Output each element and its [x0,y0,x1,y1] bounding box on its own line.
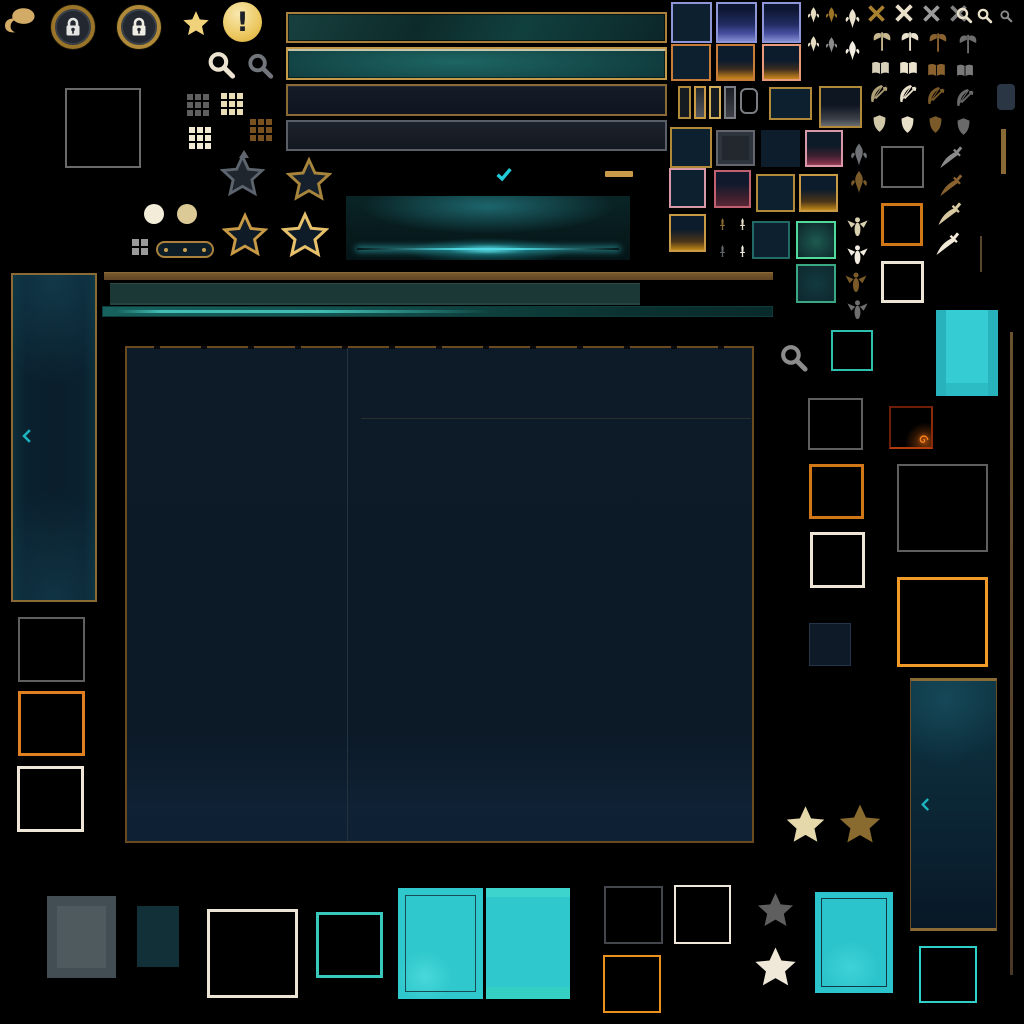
tile-orange-gradient [716,44,755,81]
knife-brown-icon [937,172,964,200]
tile-teal-dark [752,221,790,259]
frame-fire-ember [889,406,933,449]
frame-gray [808,398,863,450]
glow-button[interactable] [346,196,630,260]
leaf-brown-icon [847,167,871,197]
shield-brown-icon [926,111,945,138]
frame-white-small [881,261,924,303]
bow-tan-icon [866,82,893,106]
tile-orange-plain [671,44,711,81]
frame-teal-bottom [316,912,383,978]
x-gold-icon[interactable] [865,3,888,24]
bar-dark-teal [110,283,640,305]
bee-cream-icon [844,212,871,240]
frame-gray-large [897,464,988,552]
magnifier-gray-icon[interactable] [245,51,275,80]
star-white-filled-icon [752,944,799,990]
spiral-ember-icon [917,433,930,446]
cyan-tile-1 [398,888,483,999]
frame-white [810,532,865,588]
grid-dots-cream-icon[interactable] [221,93,244,116]
right-collapse-panel[interactable] [910,678,997,931]
tile-gold-gradient [799,174,838,212]
frame-white-bottom-2 [674,885,731,944]
sword-brown-icon [716,212,729,236]
frame-orange-small [881,203,923,246]
frame-gray-left [18,617,85,682]
bar-navy-gold[interactable] [286,84,667,116]
magnifier-cream-icon[interactable] [205,49,237,80]
book-brown-icon [924,60,949,81]
lock-badge[interactable] [51,5,95,49]
grid-dots-cream-icon-2[interactable] [189,127,212,150]
circle-cream [144,204,164,224]
panel-faint-line [361,418,751,419]
book-cream-icon [896,58,921,79]
star-outline-gold-icon [286,156,332,203]
tile-gold-plain-2 [670,127,712,168]
bar-teal-gold[interactable] [286,12,667,43]
fleur-white-large-icon [842,36,863,65]
frame-orange-left [18,691,85,756]
lock-badge-bright[interactable] [117,5,161,49]
glow-line [357,248,618,250]
frame-darkgray-bottom [604,886,663,944]
cyan-tile-2 [486,888,570,999]
fleur-cream-icon-2 [805,31,822,57]
slider-handle-gold-1[interactable] [678,86,691,119]
tile-maroon-gradient [714,170,751,208]
bee-brown-icon [842,267,870,296]
book-pale-icon [868,58,893,79]
fleur-cream-large-icon [842,4,863,33]
tile-gold-plain-3 [756,174,795,212]
pill-handle[interactable] [156,241,214,258]
star-gray-filled-icon [755,890,796,930]
rounded-dark-rect [997,84,1015,110]
tile-blue-plain [671,2,712,43]
cyan-tile-right [936,310,998,396]
gold-star-icon [181,9,211,38]
frame-orange-bottom [603,955,661,1013]
tile-gray [716,130,755,166]
check-icon[interactable] [493,165,515,183]
chevron-left-icon-2[interactable] [918,796,933,813]
tile-navy-plain [761,130,800,167]
magnifier-small-gray-icon[interactable] [999,9,1013,23]
fleur-gold-icon [823,2,840,28]
leaf-gray-icon [847,139,871,170]
slider-handle-gold-2[interactable] [694,86,706,119]
star-outline-gold-icon-2 [222,212,268,258]
divider-brown [104,272,773,280]
gold-vline [1001,129,1006,174]
panel-divider [347,348,348,841]
axe-brown-icon [925,28,951,56]
alert-glyph: ! [236,7,248,38]
axe-gray-icon [955,30,981,57]
mini-grid-icon[interactable] [132,239,148,255]
bow-cream-icon [895,82,922,106]
knife-cream-icon [935,199,963,230]
tile-blue-gradient-2 [762,2,801,43]
tile-pink-gradient [805,130,843,167]
x-cream-icon[interactable] [892,2,916,24]
brown-vline-short [980,236,982,272]
frame-square-gray-top [65,88,141,168]
shield-gray-icon [954,113,973,140]
navy-filled-tile [809,623,851,666]
tile-blue-gradient [716,2,757,43]
tile-gold-plain [769,87,812,120]
main-content-panel [125,346,754,843]
star-cream-large-icon [783,803,828,846]
gray-filled-rect [47,896,116,978]
bow-gray-icon [952,86,979,110]
shield-cream-icon [898,111,917,138]
magnifier-small-cream-icon-2[interactable] [976,7,993,24]
alert-badge[interactable]: ! [223,2,262,42]
tile-pink-plain [669,168,706,208]
bar-navy-gray[interactable] [286,120,667,151]
tile-salmon-gradient [762,44,801,81]
frame-orange [809,464,864,519]
x-gray-icon[interactable] [920,3,943,24]
tile-teal-glow [796,221,836,259]
circle-tan [177,204,197,224]
frame-teal-small [831,330,873,371]
slider-handle-gray[interactable] [724,86,736,119]
fleur-cream-icon [805,2,822,28]
slider-track-rounded[interactable] [740,88,758,114]
knife-gray-icon [937,144,964,172]
axe-cream-icon [897,27,923,55]
grid-dots-brown-icon[interactable] [250,119,273,142]
bee-gray-icon [844,295,871,323]
teal-filled-rect [137,906,179,967]
tile-teal-dark-2 [796,264,836,303]
bar-teal-bright-gold[interactable] [286,47,667,80]
texture-atlas-canvas: ! [0,0,1024,1024]
star-brown-large-icon [836,801,884,847]
magnifier-small-cream-icon[interactable] [955,6,973,24]
chevron-left-icon[interactable] [19,427,35,445]
axe-tan-icon [869,27,895,55]
frame-white-left [17,766,84,832]
brown-vline-long [1010,332,1013,975]
sword-cream-icon [736,212,749,236]
frame-cyan-bottom-right [919,946,977,1003]
gold-dash [605,171,633,177]
sword-gray-icon [716,239,729,263]
sword-white-icon [736,239,749,263]
tile-gold-gray-gradient [819,86,862,128]
frame-orange-large [897,577,988,667]
star-outline-gold-bright-icon [281,211,329,259]
slider-handle-gold-3[interactable] [709,86,721,119]
book-gray-icon [953,61,977,81]
knife-white-icon [933,229,961,260]
bee-white-icon [844,240,871,268]
fleur-gray-icon [823,32,840,58]
bar-teal-gradient [102,306,773,317]
cyan-tile-3 [815,892,893,993]
bow-brown-icon [923,84,950,108]
shield-pale-icon [870,110,889,137]
frame-white-bottom [207,909,298,998]
hat-blob-icon [2,5,38,35]
star-outline-gray-icon [220,153,265,198]
frame-gray-small [881,146,924,188]
grid-dots-gray-icon[interactable] [187,94,210,117]
tile-gold-gradient-2 [669,214,706,252]
left-collapse-panel[interactable] [11,273,97,602]
magnifier-gray-large-icon[interactable] [778,342,809,373]
